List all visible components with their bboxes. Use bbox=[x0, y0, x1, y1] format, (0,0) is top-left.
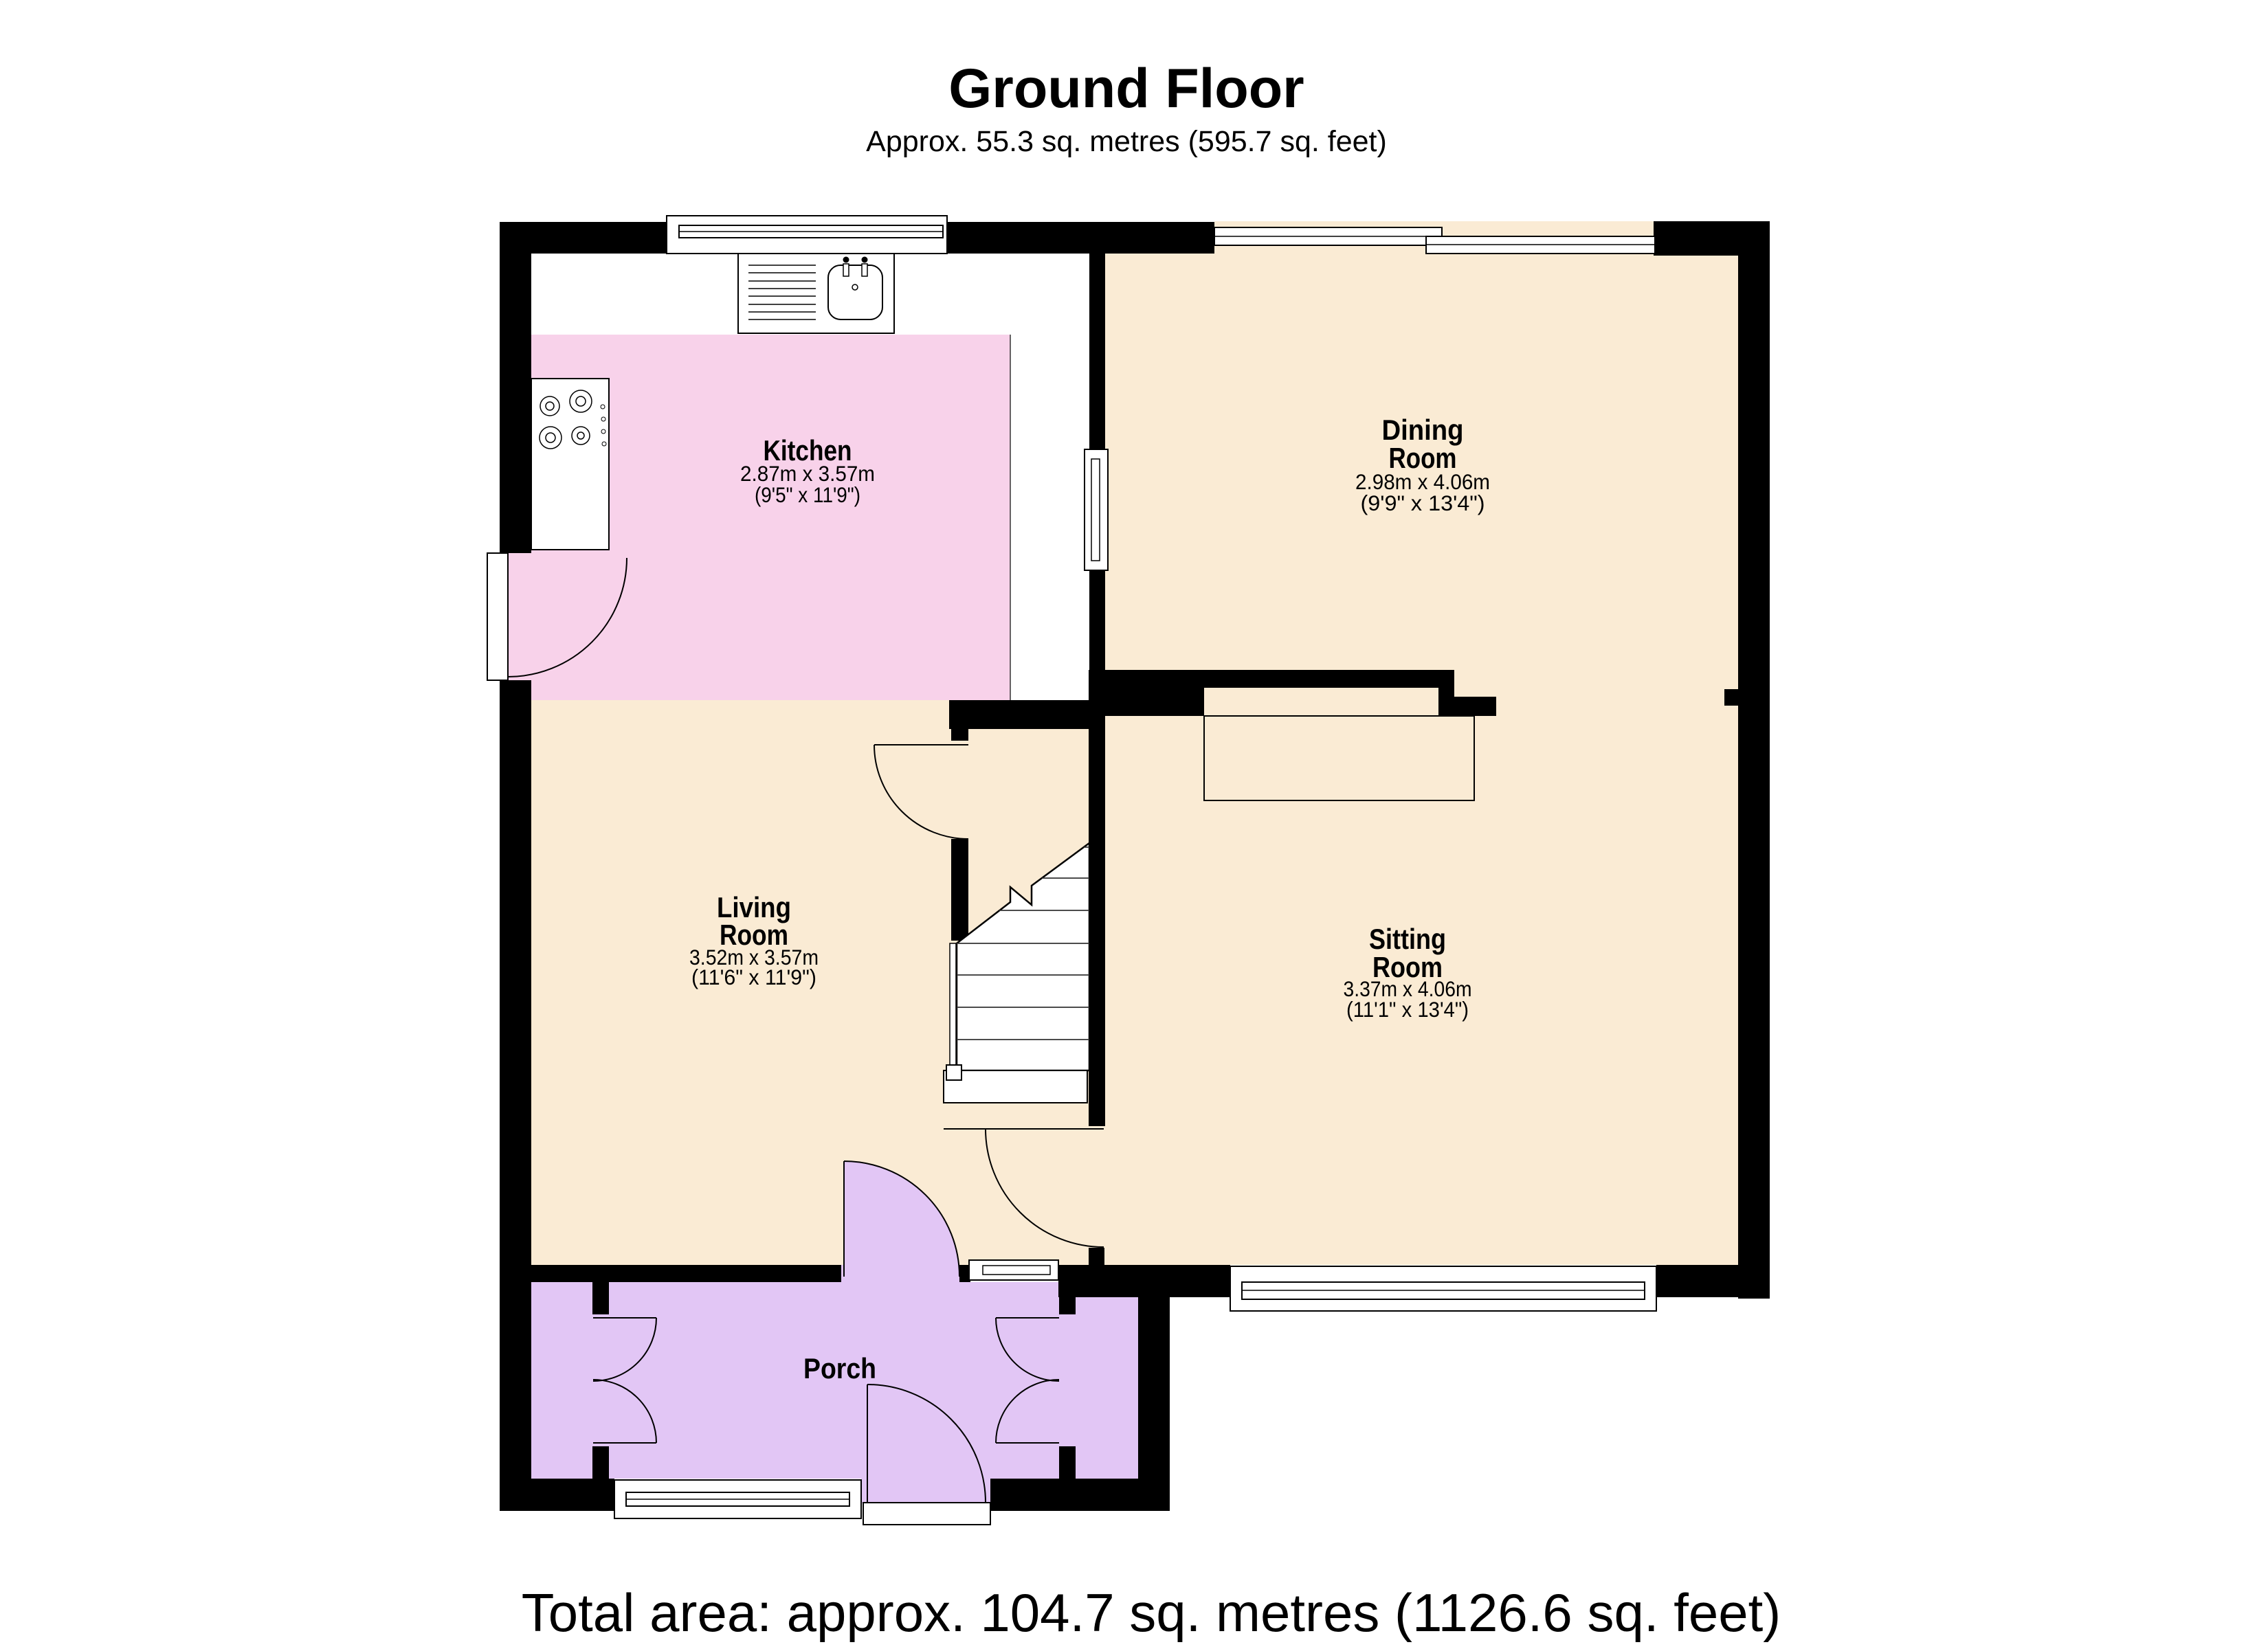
svg-text:Dining: Dining bbox=[1382, 414, 1464, 446]
svg-text:(11'1" x 13'4"): (11'1" x 13'4") bbox=[1346, 997, 1469, 1022]
svg-text:Approx. 55.3 sq. metres (595.7: Approx. 55.3 sq. metres (595.7 sq. feet) bbox=[866, 125, 1387, 158]
svg-text:(9'5" x 11'9"): (9'5" x 11'9") bbox=[755, 482, 860, 507]
svg-text:(11'6" x 11'9"): (11'6" x 11'9") bbox=[691, 965, 816, 989]
svg-text:(9'9" x 13'4"): (9'9" x 13'4") bbox=[1361, 491, 1485, 515]
svg-text:Ground Floor: Ground Floor bbox=[948, 58, 1304, 120]
svg-text:Total area: approx. 104.7 sq.: Total area: approx. 104.7 sq. metres (11… bbox=[522, 1582, 1781, 1643]
svg-text:Sitting: Sitting bbox=[1369, 923, 1446, 955]
svg-text:Porch: Porch bbox=[803, 1352, 876, 1384]
